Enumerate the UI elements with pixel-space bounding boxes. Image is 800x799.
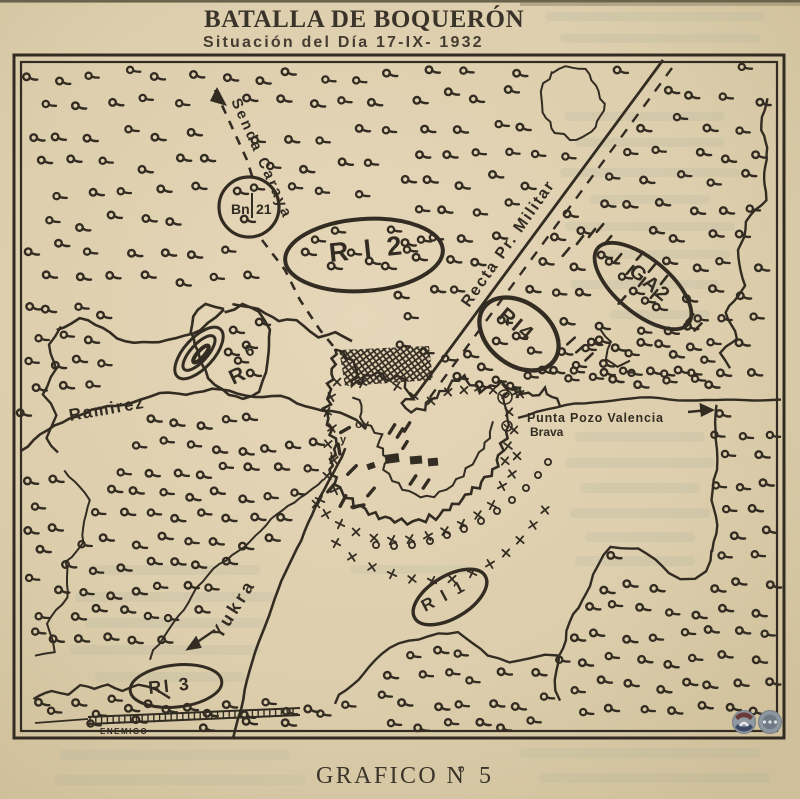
svg-text:BATALLA DE BOQUERÓN: BATALLA DE BOQUERÓN bbox=[204, 5, 524, 33]
svg-text:GRAFICO N: GRAFICO N bbox=[316, 763, 466, 789]
svg-text:ENEMIGO: ENEMIGO bbox=[100, 727, 148, 736]
svg-text:o: o bbox=[458, 760, 465, 775]
svg-text:Brava: Brava bbox=[530, 425, 564, 439]
svg-text:Situación del Día 17-IX- 193: Situación del Día 17-IX- 1932 bbox=[203, 34, 484, 51]
svg-text:5: 5 bbox=[479, 763, 491, 789]
svg-text:y: y bbox=[340, 434, 347, 446]
svg-text:ov: ov bbox=[355, 417, 369, 431]
svg-text:Bn: Bn bbox=[231, 201, 250, 217]
svg-text:Punta Pozo Valencia: Punta Pozo Valencia bbox=[527, 411, 664, 425]
svg-text:21: 21 bbox=[256, 201, 272, 217]
